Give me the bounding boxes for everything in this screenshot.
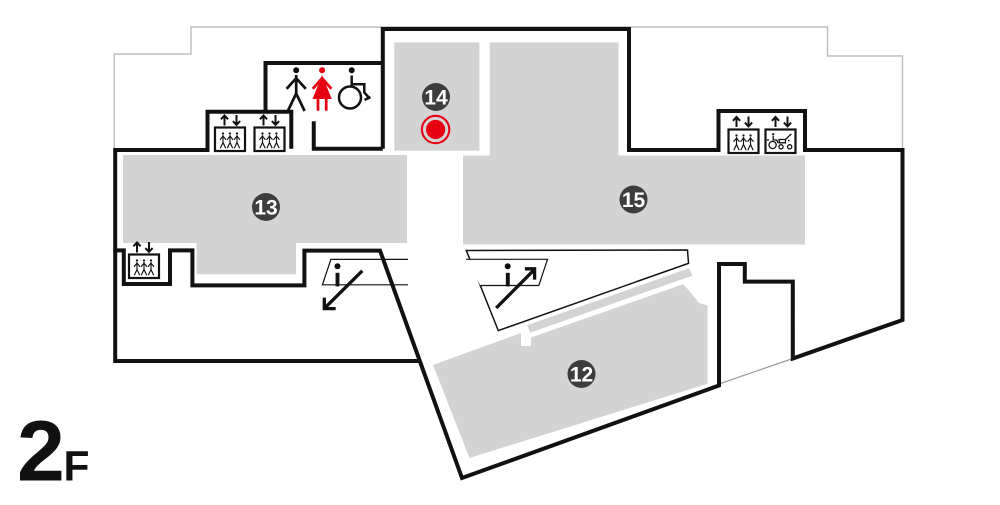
svg-text:13: 13 (254, 197, 277, 220)
svg-text:15: 15 (622, 189, 646, 212)
svg-text:14: 14 (424, 87, 448, 110)
svg-text:F: F (64, 444, 90, 491)
svg-text:2: 2 (17, 404, 65, 500)
svg-text:12: 12 (570, 364, 593, 387)
